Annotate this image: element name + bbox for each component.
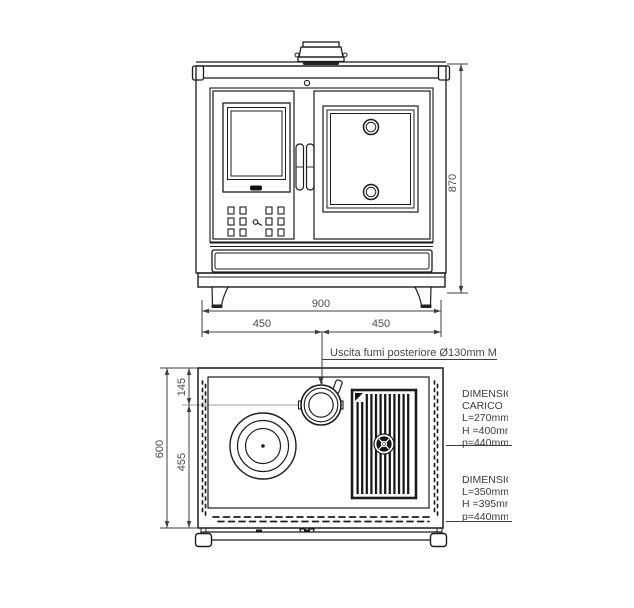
corner-cap-left — [193, 66, 204, 80]
spec-line: H =400mm — [462, 425, 508, 437]
technical-drawing-page: 870 900 450 450 Uscita — [0, 0, 634, 608]
spec-block-loading: DIMENSIONI CARICO L=270mm H =400mm p=440… — [462, 388, 508, 449]
dim-145: 145 — [176, 368, 191, 528]
grill-plate — [352, 390, 416, 498]
spec-line: p=440mm — [462, 437, 508, 449]
spec-line: CARICO — [462, 400, 508, 412]
spec-line: L=270mm — [462, 412, 508, 424]
spec-block-oven: DIMENSIONI L=350mm H =395mm p=440mm — [462, 474, 508, 523]
spec-line: L=350mm — [462, 486, 508, 498]
hotplate-rings — [230, 413, 296, 479]
spec-line: DIMENSIONI — [462, 474, 508, 486]
door-handles — [296, 144, 314, 190]
foot-left — [212, 287, 228, 306]
stove-technical-drawing: 870 900 450 450 Uscita — [0, 0, 634, 608]
stove-body — [196, 66, 446, 273]
oven-door — [314, 91, 430, 239]
dim-145-label: 145 — [176, 378, 188, 396]
ash-drawer — [210, 243, 433, 272]
dim-450-right: 450 — [322, 318, 441, 334]
spec-line: DIMENSIONI — [462, 388, 508, 400]
door-window-frame — [223, 103, 290, 192]
towel-rail — [196, 528, 447, 547]
base-plinth — [198, 273, 445, 287]
plan-view — [182, 368, 447, 547]
corner-cap-right — [439, 66, 450, 80]
foot-right — [415, 287, 431, 306]
dim-455-label: 455 — [176, 453, 188, 471]
spec-underline — [446, 445, 512, 446]
dim-900: 900 — [202, 298, 441, 337]
rail-cap-left — [196, 534, 212, 547]
dim-870-label: 870 — [447, 174, 459, 192]
spec-line: H =395mm — [462, 498, 508, 510]
front-view — [193, 42, 450, 308]
key-icon — [253, 220, 262, 226]
flue-outlet — [299, 379, 344, 425]
dim-600-label: 600 — [154, 440, 166, 458]
control-panel — [228, 207, 284, 236]
thermometer-port — [304, 80, 309, 85]
door-window-glass — [228, 108, 286, 180]
door-latch — [250, 186, 262, 191]
rail-cap-right — [431, 534, 447, 547]
firebox-door — [213, 91, 294, 239]
dim-900-label: 900 — [312, 298, 330, 310]
dim-450-left-label: 450 — [253, 318, 271, 330]
dim-450-right-label: 450 — [372, 318, 390, 330]
grill-rosette — [374, 434, 394, 454]
flue-label: Uscita fumi posteriore Ø130mm M — [330, 347, 497, 359]
dim-450-left: 450 — [202, 318, 322, 334]
spec-underline — [446, 521, 512, 522]
dim-870: 870 — [447, 64, 468, 293]
